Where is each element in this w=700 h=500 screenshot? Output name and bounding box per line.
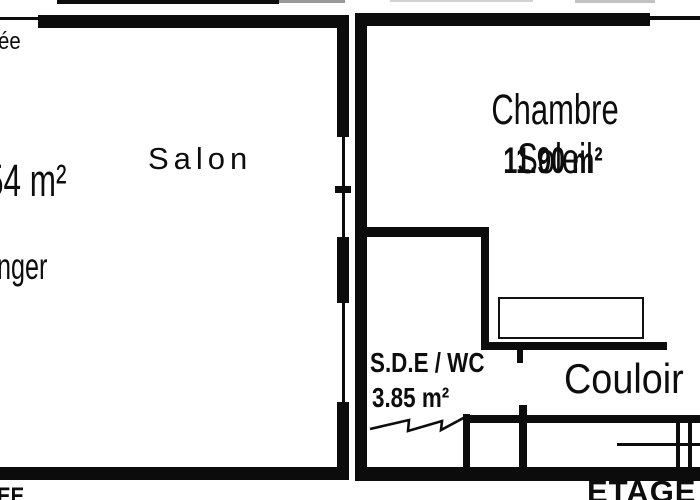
left-unit-right-wall-lower — [337, 402, 349, 467]
floor-label-etage: ETAGE — [587, 476, 697, 500]
stair-tread-1 — [676, 423, 680, 467]
top-crop-bar-faint-left — [390, 0, 533, 2]
left-unit-top-wall — [38, 15, 349, 28]
floor-label-rdc-text: EE — [0, 485, 24, 500]
right-unit-top-thin-wall — [650, 16, 700, 20]
couloir-label: Couloir — [564, 358, 697, 400]
entree-label-partial: ée — [0, 30, 25, 54]
sde-wc-area-label: 3.85 m² — [372, 384, 469, 412]
floor-label-rdc-partial: EE — [0, 485, 29, 500]
window-2-glass-line — [342, 303, 345, 402]
chambre-area-text: 11.90 m² — [503, 140, 602, 182]
bed-furniture-rect — [498, 297, 644, 339]
stairs-top-wall — [470, 415, 700, 423]
dining-label-text: nger — [0, 248, 47, 285]
top-crop-bar-fade — [279, 0, 345, 3]
left-unit-right-wall-middle — [337, 237, 349, 303]
left-unit-bottom-wall — [0, 467, 349, 480]
stair-tread-2 — [688, 423, 692, 467]
chambre-area-label: 11.90 m² — [406, 140, 700, 182]
sde-wc-label: S.D.E / WC — [370, 349, 513, 377]
couloir-label-text: Couloir — [564, 358, 684, 400]
sde-top-wall — [367, 227, 489, 237]
sde-wc-label-text: S.D.E / WC — [370, 349, 485, 377]
door-jamb-stub — [517, 350, 523, 363]
stairs-break-zigzag — [365, 410, 475, 440]
salon-label: Salon — [148, 143, 252, 174]
top-crop-bar-faint-right — [575, 0, 655, 3]
entree-label-text: ée — [0, 30, 21, 54]
left-unit-right-wall-upper — [337, 15, 349, 137]
salon-area-label-partial: 54 m² — [0, 158, 101, 203]
salon-area-text: 54 m² — [0, 158, 67, 203]
top-crop-bar — [57, 0, 279, 4]
left-unit-top-thin-wall — [0, 17, 38, 20]
window-1-mullion — [335, 186, 351, 193]
sde-wc-area-text: 3.85 m² — [372, 384, 449, 412]
right-unit-top-wall — [355, 13, 650, 26]
sde-right-wall — [481, 227, 489, 345]
dining-label-partial: nger — [0, 248, 71, 285]
floor-plan: ée 54 m² nger Salon EE Chambre Soleil 11… — [0, 0, 700, 500]
